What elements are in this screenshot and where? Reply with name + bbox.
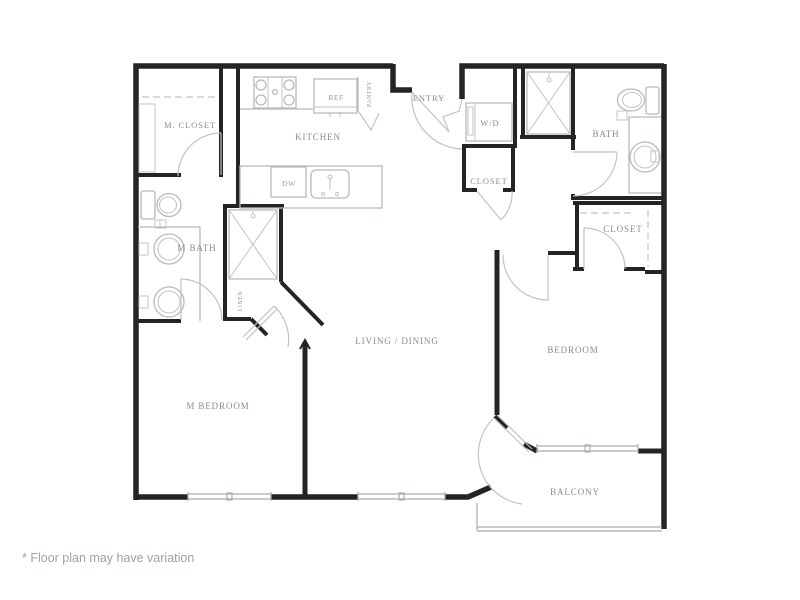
room-label-m-bedroom: M BEDROOM: [186, 401, 249, 411]
window-master-bedroom: [188, 492, 271, 501]
room-label-kitchen: KITCHEN: [295, 132, 341, 142]
door-m-closet: [178, 133, 221, 176]
tp-holder-bath: [617, 111, 627, 120]
room-label-m-closet: M. CLOSET: [164, 120, 216, 130]
door-bedroom-closet: [584, 228, 625, 269]
shower-icon-bath: [527, 72, 570, 134]
balcony-railing: [477, 503, 662, 531]
room-label-m-bath: M BATH: [177, 243, 216, 253]
room-label-balcony: BALCONY: [550, 487, 600, 497]
door-m-bedroom: [243, 306, 289, 347]
shower-icon-m-bath: [229, 210, 277, 279]
window-living: [358, 492, 445, 501]
interior-walls: [136, 66, 664, 497]
appliance-label-pantry: PANTRY: [367, 81, 373, 107]
door-bedroom: [503, 255, 548, 300]
floor-plan-drawing: M. CLOSET KITCHEN ENTRY W/D BATH CLOSET …: [0, 0, 800, 600]
appliance-label-dw: DW: [282, 179, 296, 188]
door-hall-closet: [477, 191, 512, 220]
toilet-icon-m-bath: [141, 191, 181, 219]
room-labels: M. CLOSET KITCHEN ENTRY W/D BATH CLOSET …: [164, 93, 643, 497]
vanity-m-bath: [138, 227, 200, 321]
floor-plan-page: M. CLOSET KITCHEN ENTRY W/D BATH CLOSET …: [0, 0, 800, 600]
vanity-bath: [629, 117, 661, 193]
door-m-bath: [181, 279, 222, 320]
stove-icon: [254, 77, 296, 108]
room-label-hall-closet: CLOSET: [470, 176, 508, 186]
closet-rod-m-closet: [139, 97, 217, 172]
room-label-bath: BATH: [592, 129, 619, 139]
room-label-linen: LINEN: [238, 291, 244, 312]
room-label-bedroom: BEDROOM: [547, 345, 598, 355]
window-bedroom: [537, 444, 638, 453]
room-label-bedroom-closet: CLOSET: [603, 224, 642, 234]
appliance-label-ref: REF: [328, 93, 343, 102]
closet-rod-bedroom: [580, 210, 648, 267]
room-label-wd: W/D: [480, 118, 499, 128]
kitchen-sink-icon: [311, 170, 349, 198]
room-label-entry: ENTRY: [413, 93, 445, 103]
footnote: * Floor plan may have variation: [22, 551, 194, 565]
toilet-icon-bath: [618, 87, 660, 114]
room-label-living-dining: LIVING / DINING: [355, 336, 438, 346]
door-bath: [573, 152, 617, 196]
